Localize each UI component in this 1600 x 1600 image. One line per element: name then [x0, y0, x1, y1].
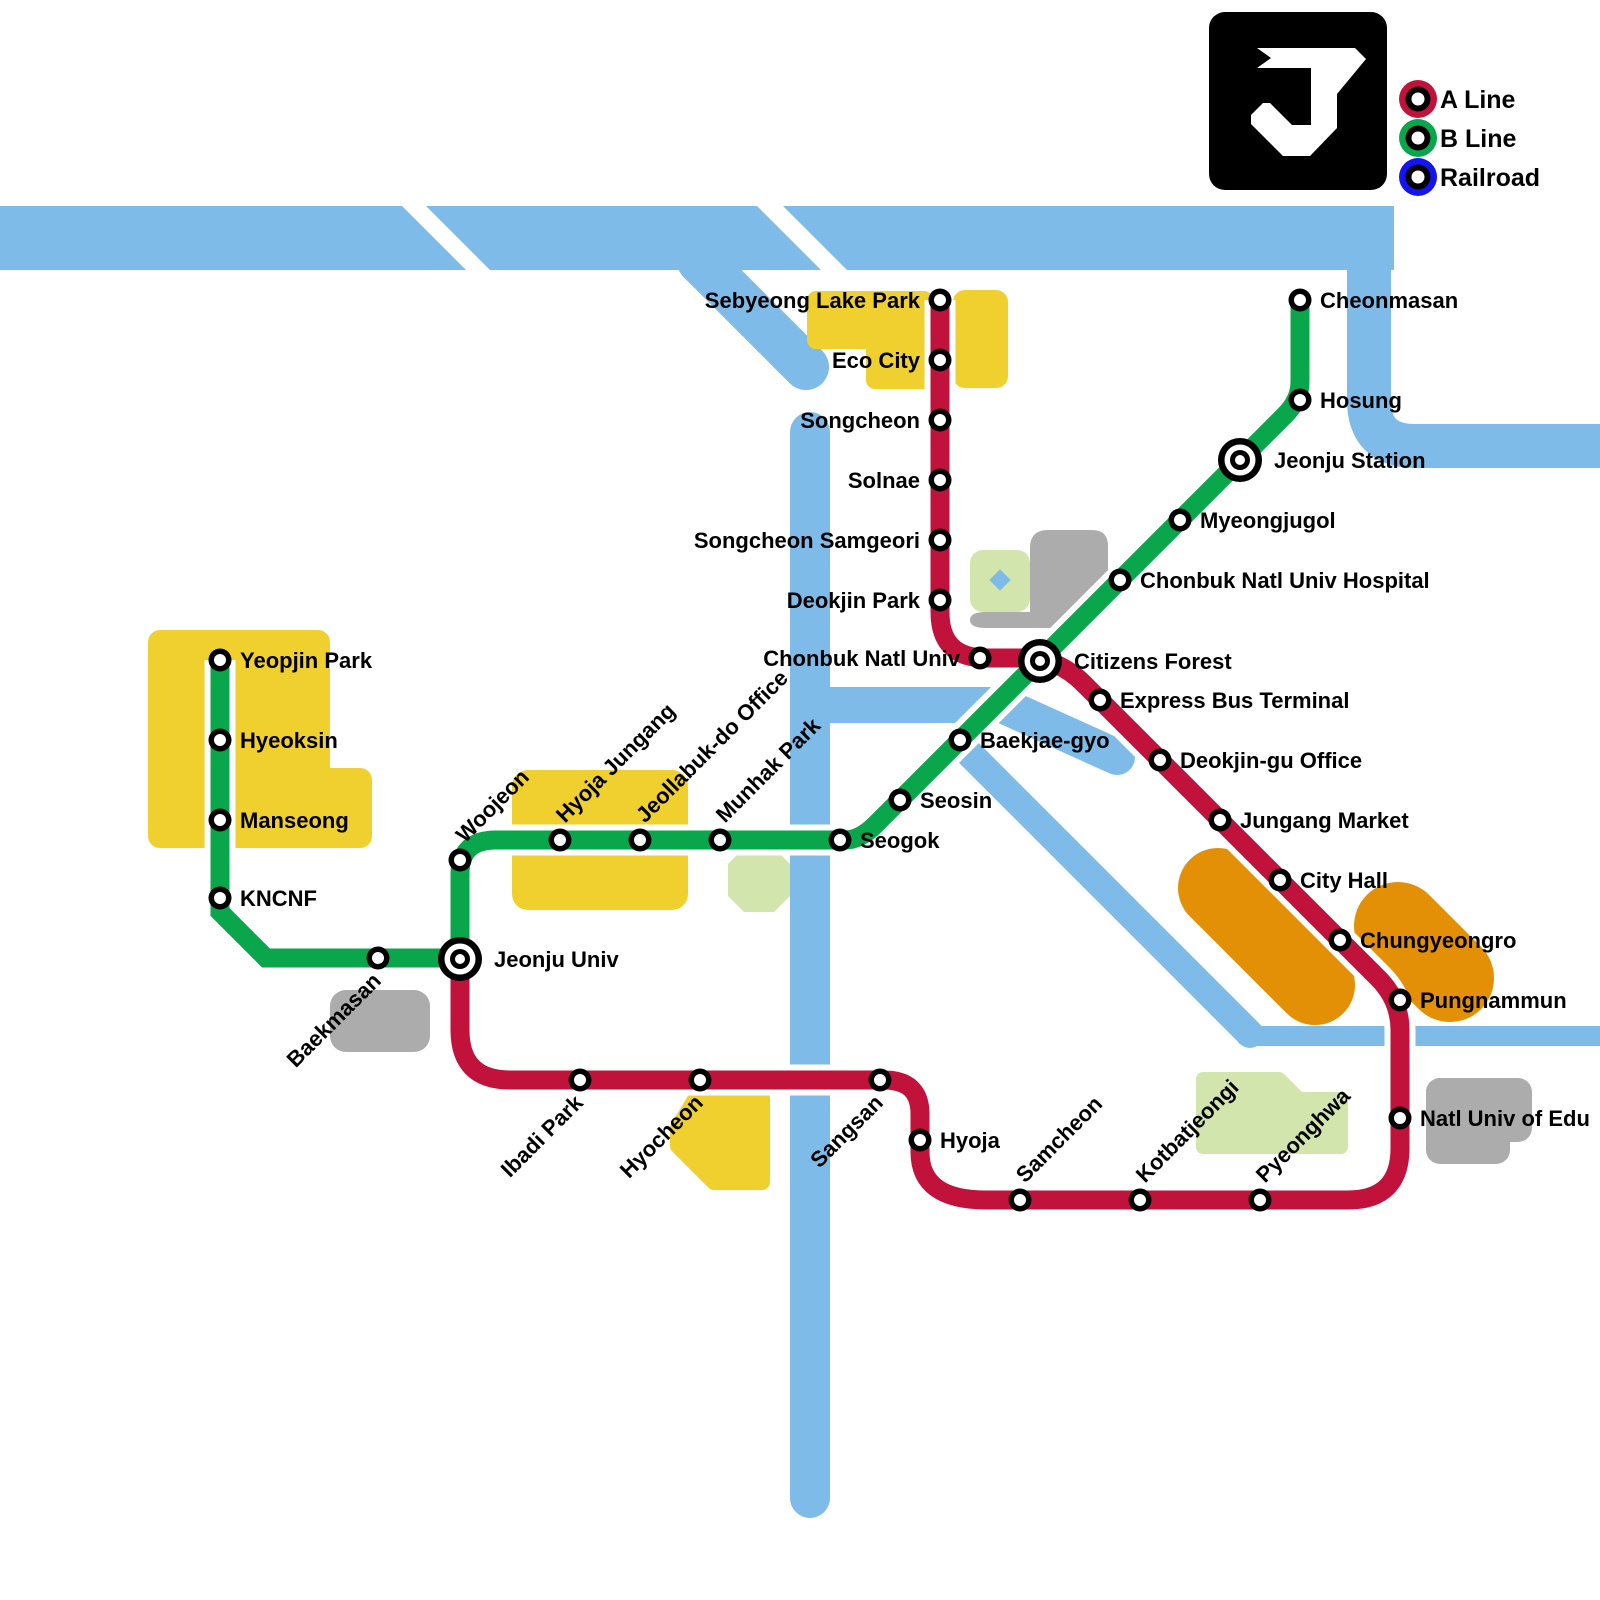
station-baekmasan[interactable] — [367, 947, 390, 970]
station-label-cheonmasan: Cheonmasan — [1320, 288, 1458, 313]
station-munhak-park[interactable] — [709, 829, 732, 852]
station-label-myeongjugol: Myeongjugol — [1200, 508, 1336, 533]
station-label-seogok: Seogok — [860, 828, 940, 853]
station-label-songcheon: Songcheon — [800, 408, 920, 433]
station-songcheon-samgeori[interactable] — [929, 529, 952, 552]
legend-item-b-line: B Line — [1399, 119, 1516, 157]
station-label-eco-city: Eco City — [832, 348, 921, 373]
legend-item-a-line: A Line — [1399, 80, 1516, 118]
station-label-pungnammun: Pungnammun — [1420, 988, 1567, 1013]
station-natl-univ-of-edu[interactable] — [1389, 1107, 1412, 1130]
station-ibadi-park[interactable] — [569, 1069, 592, 1092]
river-band-west — [0, 206, 466, 270]
station-myeongjugol[interactable] — [1169, 509, 1192, 532]
river-right-vertical — [1369, 248, 1600, 446]
station-pungnammun[interactable] — [1389, 989, 1412, 1012]
station-hyeoksin[interactable] — [209, 729, 232, 752]
station-label-chonbuk-natl-univ-hospital: Chonbuk Natl Univ Hospital — [1140, 568, 1430, 593]
station-seosin[interactable] — [889, 789, 912, 812]
station-pyeonghwa[interactable] — [1249, 1189, 1272, 1212]
station-kncnf[interactable] — [209, 887, 232, 910]
station-label-seosin: Seosin — [920, 788, 992, 813]
station-label-yeopjin-park: Yeopjin Park — [240, 648, 373, 673]
station-hyoja-jungang[interactable] — [549, 829, 572, 852]
station-kotbatjeongi[interactable] — [1129, 1189, 1152, 1212]
station-label-express-bus-terminal: Express Bus Terminal — [1120, 688, 1349, 713]
station-label-deokjin-park: Deokjin Park — [787, 588, 921, 613]
station-hyoja[interactable] — [909, 1129, 932, 1152]
station-label-natl-univ-of-edu: Natl Univ of Edu — [1420, 1106, 1590, 1131]
station-jeonju-univ[interactable] — [438, 937, 482, 981]
station-label-hyeoksin: Hyeoksin — [240, 728, 338, 753]
station-deokjin-gu-office[interactable] — [1149, 749, 1172, 772]
district-yellow-sebyeong-east — [953, 290, 1008, 388]
station-label-jeollabuk-do-office: Jeollabuk-do Office — [631, 665, 793, 827]
station-city-hall[interactable] — [1269, 869, 1292, 892]
station-express-bus-terminal[interactable] — [1089, 689, 1112, 712]
station-label-hyoja: Hyoja — [940, 1128, 1001, 1153]
station-woojeon[interactable] — [449, 849, 472, 872]
station-label-city-hall: City Hall — [1300, 868, 1388, 893]
station-songcheon[interactable] — [929, 409, 952, 432]
station-baekjae-gyo[interactable] — [949, 729, 972, 752]
station-label-hosung: Hosung — [1320, 388, 1402, 413]
station-label-ibadi-park: Ibadi Park — [496, 1089, 589, 1182]
station-hyocheon[interactable] — [689, 1069, 712, 1092]
station-solnae[interactable] — [929, 469, 952, 492]
station-chungyeongro[interactable] — [1329, 929, 1352, 952]
metro-map-canvas: Sebyeong Lake ParkEco CitySongcheonSolna… — [0, 0, 1600, 1600]
station-chonbuk-natl-univ[interactable] — [969, 647, 992, 670]
station-label-sebyeong-lake-park: Sebyeong Lake Park — [705, 288, 921, 313]
station-label-jeonju-station: Jeonju Station — [1274, 448, 1426, 473]
station-sebyeong-lake-park[interactable] — [929, 289, 952, 312]
station-eco-city[interactable] — [929, 349, 952, 372]
river-band-mid — [426, 206, 821, 270]
station-label-manseong: Manseong — [240, 808, 349, 833]
station-label-samcheon: Samcheon — [1011, 1091, 1107, 1187]
station-jeonju-station[interactable] — [1218, 438, 1262, 482]
station-cheonmasan[interactable] — [1289, 289, 1312, 312]
legend-label-a-line: A Line — [1440, 86, 1516, 114]
district-park-munhak — [728, 848, 790, 912]
river-band-east — [783, 206, 1394, 270]
station-manseong[interactable] — [209, 809, 232, 832]
station-label-songcheon-samgeori: Songcheon Samgeori — [694, 528, 920, 553]
legend-label-b-line: B Line — [1440, 125, 1516, 153]
station-hosung[interactable] — [1289, 389, 1312, 412]
station-label-chonbuk-natl-univ: Chonbuk Natl Univ — [763, 646, 961, 671]
station-label-solnae: Solnae — [848, 468, 920, 493]
metro-logo — [1209, 12, 1387, 190]
station-label-jungang-market: Jungang Market — [1240, 808, 1409, 833]
station-yeopjin-park[interactable] — [209, 649, 232, 672]
legend-items: A LineB LineRailroad — [1399, 80, 1540, 196]
jeonju-metro-map: Sebyeong Lake ParkEco CitySongcheonSolna… — [0, 0, 1600, 1600]
legend: A LineB LineRailroad — [1209, 12, 1540, 196]
station-citizens-forest[interactable] — [1018, 639, 1062, 683]
station-label-deokjin-gu-office: Deokjin-gu Office — [1180, 748, 1362, 773]
station-deokjin-park[interactable] — [929, 589, 952, 612]
station-jeollabuk-do-office[interactable] — [629, 829, 652, 852]
legend-label-railroad: Railroad — [1440, 164, 1540, 192]
station-jungang-market[interactable] — [1209, 809, 1232, 832]
station-label-baekjae-gyo: Baekjae-gyo — [980, 728, 1110, 753]
station-seogok[interactable] — [829, 829, 852, 852]
river-spur — [700, 261, 806, 367]
station-label-kncnf: KNCNF — [240, 886, 317, 911]
station-label-chungyeongro: Chungyeongro — [1360, 928, 1516, 953]
station-label-citizens-forest: Citizens Forest — [1074, 649, 1232, 674]
station-label-jeonju-univ: Jeonju Univ — [494, 947, 619, 972]
station-sangsan[interactable] — [869, 1069, 892, 1092]
station-chonbuk-natl-univ-hospital[interactable] — [1109, 569, 1132, 592]
station-samcheon[interactable] — [1009, 1189, 1032, 1212]
legend-item-railroad: Railroad — [1399, 158, 1540, 196]
